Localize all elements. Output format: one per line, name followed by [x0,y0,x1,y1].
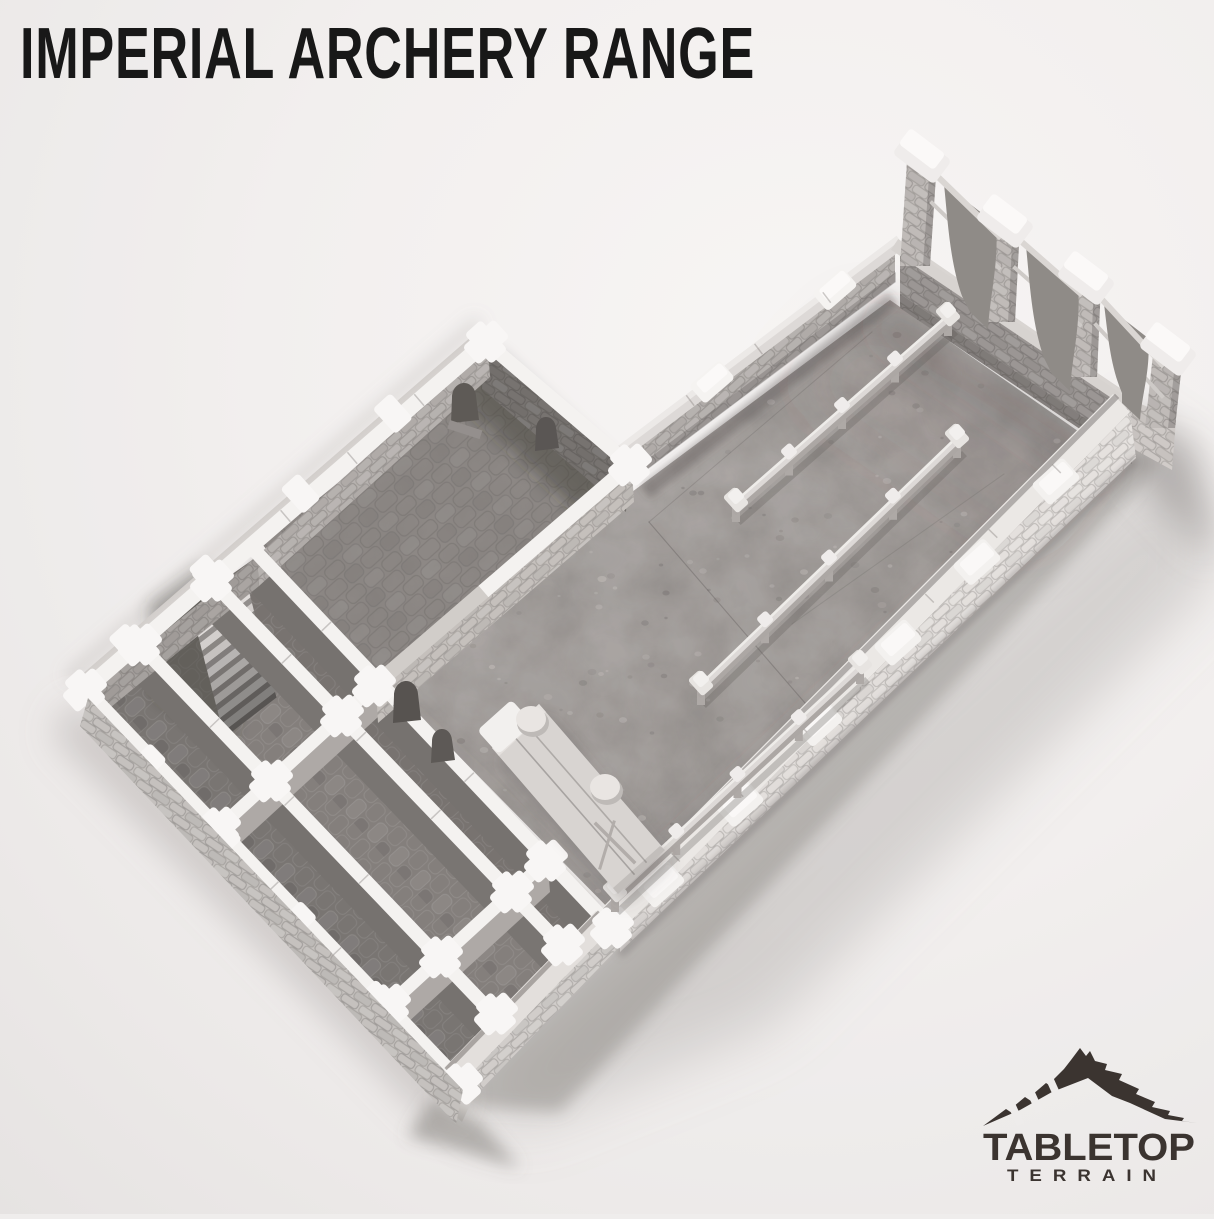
svg-text:TABLETOP: TABLETOP [983,1127,1195,1169]
svg-text:IMPERIAL ARCHERY RANGE: IMPERIAL ARCHERY RANGE [20,14,755,94]
svg-text:TERRAIN: TERRAIN [1007,1166,1167,1185]
